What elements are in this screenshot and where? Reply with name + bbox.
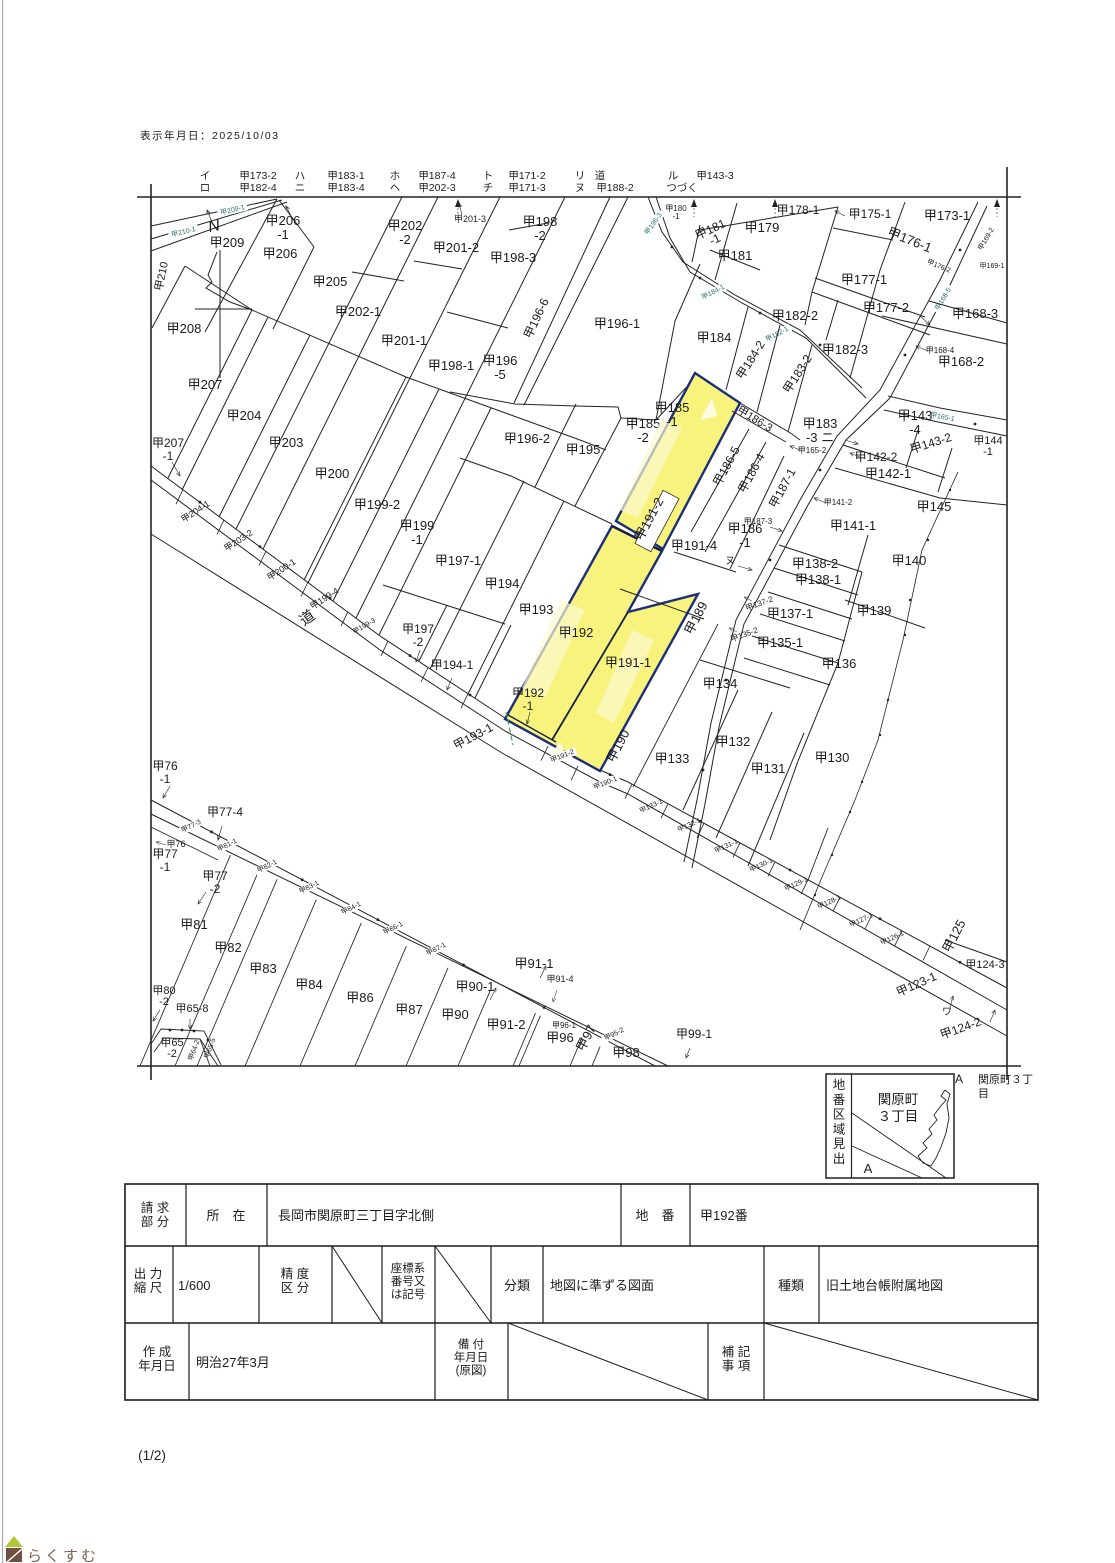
svg-text:甲81: 甲81 bbox=[180, 917, 207, 932]
svg-text:区: 区 bbox=[833, 1108, 846, 1122]
svg-text:関原町: 関原町 bbox=[878, 1092, 919, 1107]
svg-text:域: 域 bbox=[833, 1122, 846, 1136]
svg-text:甲141-1: 甲141-1 bbox=[830, 518, 876, 533]
svg-text:甲196-1: 甲196-1 bbox=[594, 316, 640, 331]
svg-text:見: 見 bbox=[833, 1137, 846, 1151]
svg-text:備 付年月日(原図): 備 付年月日(原図) bbox=[454, 1337, 489, 1377]
svg-text:甲192番: 甲192番 bbox=[700, 1208, 748, 1223]
svg-text:甲77-4: 甲77-4 bbox=[207, 805, 243, 819]
svg-text:甲182-4: 甲182-4 bbox=[239, 182, 277, 194]
svg-text:甲206: 甲206 bbox=[263, 246, 298, 261]
svg-text:道: 道 bbox=[595, 169, 606, 182]
svg-text:長岡市関原町三丁目字北側: 長岡市関原町三丁目字北側 bbox=[278, 1208, 434, 1223]
svg-text:甲65-8: 甲65-8 bbox=[175, 1003, 208, 1015]
svg-text:甲200: 甲200 bbox=[315, 466, 350, 481]
svg-text:地図に準ずる図面: 地図に準ずる図面 bbox=[550, 1278, 654, 1293]
svg-text:甲191-4: 甲191-4 bbox=[671, 538, 717, 553]
svg-text:リ: リ bbox=[575, 170, 586, 182]
svg-text:甲208: 甲208 bbox=[167, 321, 202, 336]
svg-text:旧土地台帳附属地図: 旧土地台帳附属地図 bbox=[826, 1278, 943, 1293]
svg-text:ニ: ニ bbox=[295, 182, 306, 194]
svg-text:甲96: 甲96 bbox=[546, 1030, 573, 1045]
svg-text:甲182-2: 甲182-2 bbox=[772, 308, 818, 323]
svg-text:甲204: 甲204 bbox=[227, 408, 262, 423]
svg-text:甲207: 甲207 bbox=[188, 377, 223, 392]
svg-text:甲191-1: 甲191-1 bbox=[605, 655, 651, 670]
svg-text:甲171-3: 甲171-3 bbox=[508, 182, 546, 194]
svg-text:甲171-2: 甲171-2 bbox=[508, 170, 546, 182]
svg-text:甲134: 甲134 bbox=[703, 676, 738, 691]
svg-text:甲84: 甲84 bbox=[295, 977, 322, 992]
svg-text:甲131: 甲131 bbox=[751, 761, 786, 776]
svg-text:甲192: 甲192 bbox=[559, 625, 594, 640]
svg-text:甲196-2: 甲196-2 bbox=[504, 431, 550, 446]
svg-text:甲194: 甲194 bbox=[485, 576, 520, 591]
svg-text:らくすむ: らくすむ bbox=[27, 1548, 99, 1563]
svg-text:明治27年3月: 明治27年3月 bbox=[196, 1355, 270, 1370]
svg-text:甲201-1: 甲201-1 bbox=[381, 333, 427, 348]
svg-text:ホ: ホ bbox=[390, 170, 401, 182]
svg-text:甲202-3: 甲202-3 bbox=[418, 182, 456, 194]
svg-text:つづく: つづく bbox=[666, 182, 698, 194]
svg-text:甲165-2: 甲165-2 bbox=[798, 446, 827, 455]
svg-text:甲201-3: 甲201-3 bbox=[454, 214, 486, 224]
svg-text:甲198-1: 甲198-1 bbox=[428, 358, 474, 373]
svg-text:A: A bbox=[864, 1161, 873, 1176]
svg-text:甲183-1: 甲183-1 bbox=[327, 170, 365, 182]
svg-text:甲188-2: 甲188-2 bbox=[596, 182, 634, 194]
svg-text:甲177-1: 甲177-1 bbox=[841, 272, 887, 287]
svg-text:甲202-1: 甲202-1 bbox=[335, 304, 381, 319]
svg-text:甲183-4: 甲183-4 bbox=[327, 182, 365, 194]
svg-text:甲82: 甲82 bbox=[214, 940, 241, 955]
svg-text:甲142-2: 甲142-2 bbox=[855, 450, 898, 464]
svg-text:甲91-1: 甲91-1 bbox=[514, 956, 553, 971]
svg-text:甲124-3: 甲124-3 bbox=[965, 959, 1004, 971]
svg-text:甲91-4: 甲91-4 bbox=[546, 974, 573, 984]
svg-text:地: 地 bbox=[833, 1078, 846, 1092]
svg-text:甲199-2: 甲199-2 bbox=[354, 497, 400, 512]
svg-text:甲177-2: 甲177-2 bbox=[863, 300, 909, 315]
svg-text:イ: イ bbox=[200, 170, 211, 182]
svg-text:甲83: 甲83 bbox=[249, 961, 276, 976]
svg-text:甲194-1: 甲194-1 bbox=[431, 658, 474, 672]
svg-text:甲182-3: 甲182-3 bbox=[822, 342, 868, 357]
svg-text:甲99-1: 甲99-1 bbox=[676, 1027, 712, 1041]
svg-text:座標系番号又は記号: 座標系番号又は記号 bbox=[391, 1261, 426, 1301]
svg-text:甲136: 甲136 bbox=[822, 656, 857, 671]
svg-text:甲142-1: 甲142-1 bbox=[865, 466, 911, 481]
svg-text:甲87: 甲87 bbox=[395, 1002, 422, 1017]
svg-text:ヌ: ヌ bbox=[575, 182, 586, 194]
svg-text:ロ: ロ bbox=[200, 182, 211, 194]
svg-text:甲198-3: 甲198-3 bbox=[490, 250, 536, 265]
svg-text:甲209: 甲209 bbox=[210, 235, 245, 250]
svg-text:甲195: 甲195 bbox=[566, 442, 601, 457]
svg-text:目: 目 bbox=[978, 1088, 989, 1100]
svg-text:甲130: 甲130 bbox=[815, 750, 850, 765]
svg-text:甲145: 甲145 bbox=[917, 499, 952, 514]
svg-text:甲169-1: 甲169-1 bbox=[980, 262, 1005, 270]
svg-text:甲178-1: 甲178-1 bbox=[777, 203, 820, 217]
svg-text:チ: チ bbox=[483, 182, 494, 194]
svg-text:甲98: 甲98 bbox=[612, 1045, 639, 1060]
svg-text:甲184: 甲184 bbox=[697, 330, 732, 345]
svg-text:甲168-3: 甲168-3 bbox=[952, 306, 998, 321]
svg-text:甲179: 甲179 bbox=[745, 220, 780, 235]
svg-text:甲197-1: 甲197-1 bbox=[435, 553, 481, 568]
svg-text:所 在: 所 在 bbox=[206, 1208, 245, 1223]
svg-text:地 番: 地 番 bbox=[635, 1208, 674, 1223]
svg-text:甲183-3 ニ: 甲183-3 ニ bbox=[803, 416, 838, 445]
svg-text:ハ: ハ bbox=[295, 170, 306, 182]
svg-text:種類: 種類 bbox=[778, 1278, 804, 1293]
svg-text:(1/2): (1/2) bbox=[138, 1448, 166, 1463]
svg-text:３丁目: ３丁目 bbox=[878, 1109, 919, 1124]
svg-text:甲132: 甲132 bbox=[716, 734, 751, 749]
svg-text:作 成年月日: 作 成年月日 bbox=[138, 1345, 176, 1373]
svg-text:関原町３丁: 関原町３丁 bbox=[978, 1073, 1033, 1086]
svg-text:分類: 分類 bbox=[504, 1278, 530, 1293]
svg-text:甲135-1: 甲135-1 bbox=[757, 635, 803, 650]
svg-text:甲173-2: 甲173-2 bbox=[239, 170, 277, 182]
svg-text:甲90: 甲90 bbox=[441, 1007, 468, 1022]
svg-text:表示年月日：2025/10/03: 表示年月日：2025/10/03 bbox=[140, 129, 280, 142]
svg-text:甲133: 甲133 bbox=[655, 751, 690, 766]
svg-text:甲168-2: 甲168-2 bbox=[938, 354, 984, 369]
svg-text:甲137-1: 甲137-1 bbox=[767, 606, 813, 621]
svg-text:ワ: ワ bbox=[942, 1007, 952, 1018]
svg-text:出 力縮 尺: 出 力縮 尺 bbox=[134, 1267, 162, 1295]
svg-text:出: 出 bbox=[833, 1152, 846, 1166]
svg-text:1/600: 1/600 bbox=[178, 1278, 211, 1293]
svg-text:甲96-1: 甲96-1 bbox=[552, 1021, 577, 1030]
svg-text:甲201-2: 甲201-2 bbox=[433, 240, 479, 255]
svg-text:精 度区 分: 精 度区 分 bbox=[281, 1266, 310, 1295]
svg-text:甲193: 甲193 bbox=[519, 602, 554, 617]
svg-text:甲86: 甲86 bbox=[346, 990, 373, 1005]
svg-text:請 求部 分: 請 求部 分 bbox=[141, 1201, 170, 1229]
svg-text:ル: ル bbox=[668, 170, 679, 182]
svg-text:甲203: 甲203 bbox=[269, 435, 304, 450]
svg-text:甲90-1: 甲90-1 bbox=[455, 979, 494, 994]
svg-text:A: A bbox=[955, 1072, 963, 1086]
svg-text:甲141-2: 甲141-2 bbox=[824, 498, 853, 507]
svg-text:補 記事 項: 補 記事 項 bbox=[722, 1344, 751, 1373]
svg-text:ト: ト bbox=[483, 170, 494, 182]
svg-text:甲91-2: 甲91-2 bbox=[486, 1017, 525, 1032]
svg-text:甲138-1: 甲138-1 bbox=[795, 572, 841, 587]
svg-text:甲187-4: 甲187-4 bbox=[418, 170, 456, 182]
svg-text:甲173-1: 甲173-1 bbox=[924, 208, 970, 223]
svg-text:甲138-2: 甲138-2 bbox=[792, 556, 838, 571]
svg-text:甲181: 甲181 bbox=[718, 248, 753, 263]
svg-text:甲205: 甲205 bbox=[313, 274, 348, 289]
svg-text:甲175-1: 甲175-1 bbox=[849, 207, 892, 221]
svg-text:甲143-3: 甲143-3 bbox=[696, 170, 734, 182]
svg-text:番: 番 bbox=[833, 1093, 846, 1107]
svg-text:ヘ: ヘ bbox=[390, 182, 401, 194]
